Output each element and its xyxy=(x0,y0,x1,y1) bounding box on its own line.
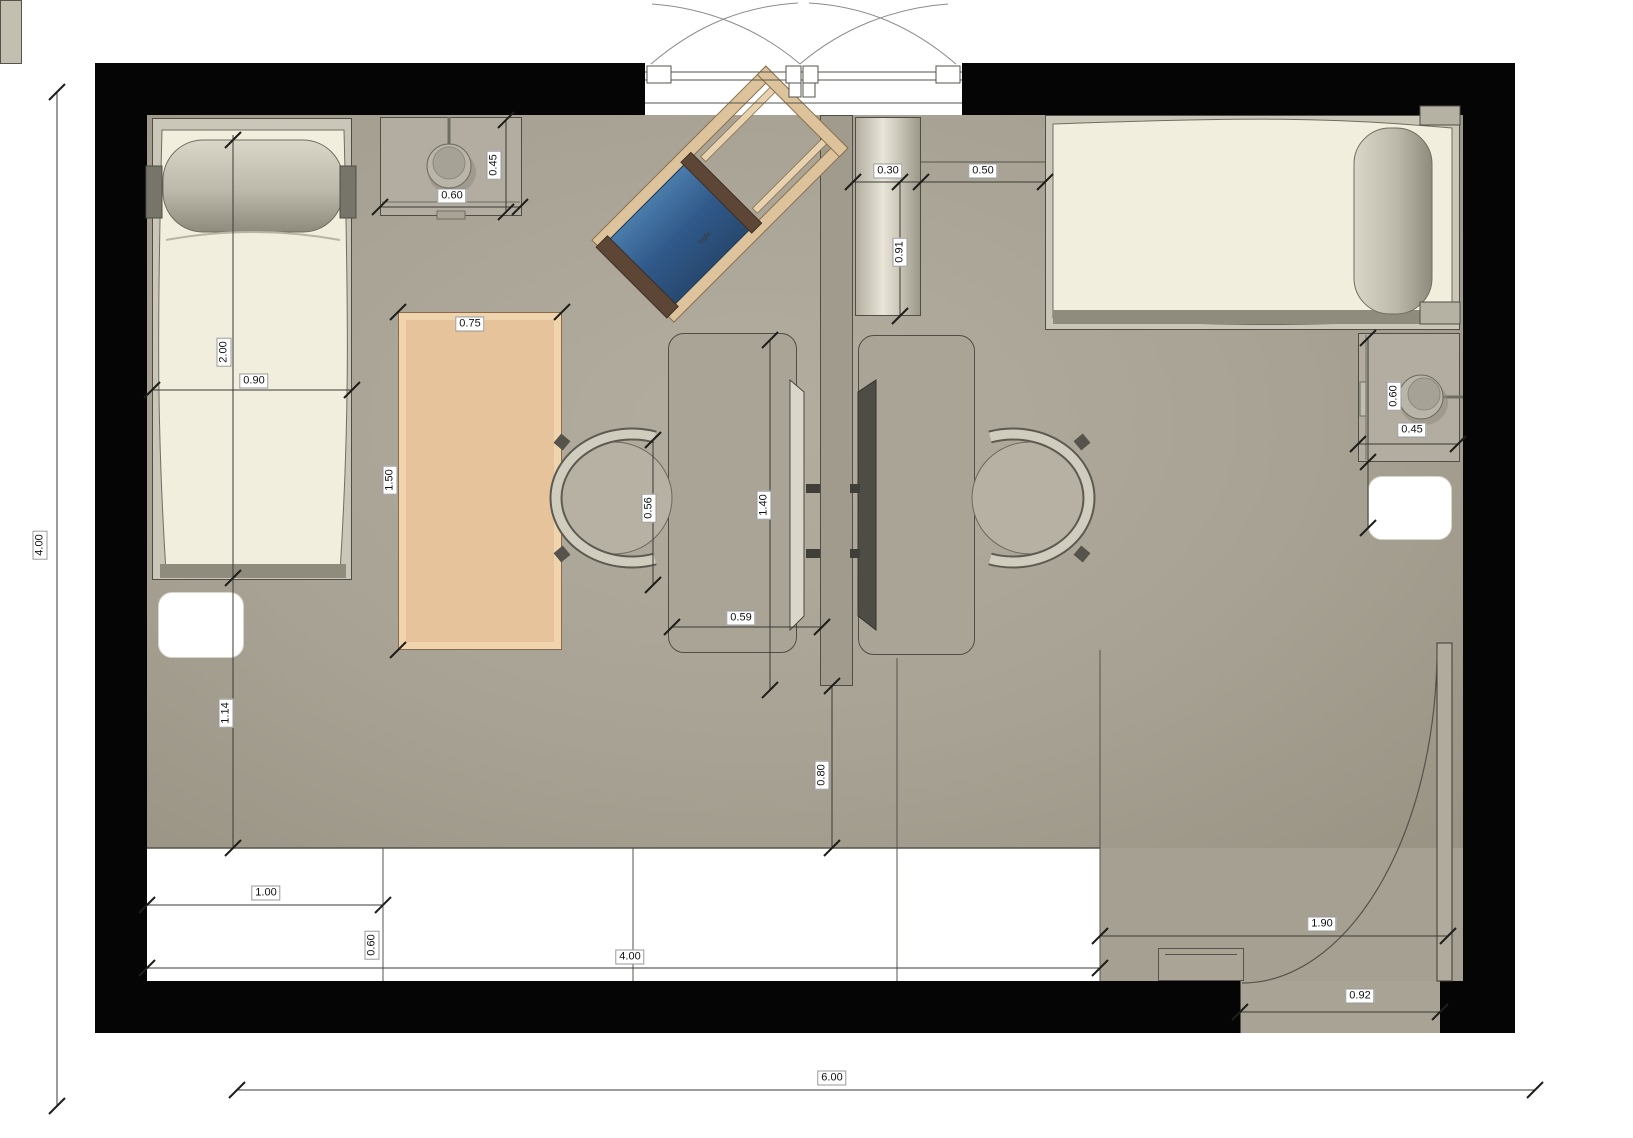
dim-label-band-0-60: 0.60 xyxy=(365,930,380,959)
dim-label-rug-length: 1.50 xyxy=(383,465,398,494)
dim-label-bed-left-length: 2.00 xyxy=(217,337,232,366)
dim-label-door-clearance: 1.90 xyxy=(1307,917,1336,932)
door xyxy=(1242,643,1452,983)
door-leaf xyxy=(1437,643,1452,981)
monitor-right xyxy=(850,380,876,630)
dim-label-cabinet-length: 0.91 xyxy=(893,237,908,266)
dim-label-desk-length: 1.40 xyxy=(757,490,772,519)
dim-label-cabinet-to-bed: 0.50 xyxy=(968,164,997,179)
dim-label-band-4-00: 4.00 xyxy=(615,950,644,965)
bed-left-mattress xyxy=(146,130,356,578)
dim-label-bed-to-band: 1.14 xyxy=(219,698,234,727)
monitor-left xyxy=(790,380,820,630)
dim-label-desk-depth: 0.59 xyxy=(726,611,755,626)
dim-label-nightstand-right-width: 0.45 xyxy=(1397,423,1426,438)
dim-label-bed-left-width: 0.90 xyxy=(239,374,268,389)
bed-right-mattress xyxy=(1053,106,1460,325)
door-swing-arc xyxy=(1242,648,1437,983)
dim-label-chair-width: 0.56 xyxy=(642,493,657,522)
dim-label-room-depth: 4.00 xyxy=(33,530,48,559)
dim-label-room-width: 6.00 xyxy=(817,1071,846,1086)
dim-label-nightstand-right-length: 0.60 xyxy=(1387,381,1402,410)
plan-linework: sigla xyxy=(0,0,1633,1138)
nightstand-right-details xyxy=(1360,335,1463,460)
dim-label-band-1: 1.00 xyxy=(251,886,280,901)
dim-label-cabinet-width: 0.30 xyxy=(873,164,902,179)
chair-right xyxy=(972,434,1090,563)
window-frame xyxy=(645,66,962,103)
window-swing-arcs xyxy=(651,3,956,64)
deck-chair: sigla xyxy=(590,66,847,323)
dim-label-door-width: 0.92 xyxy=(1345,989,1374,1004)
dim-label-partition-to-band: 0.80 xyxy=(815,760,830,789)
dim-label-rug-width: 0.75 xyxy=(455,317,484,332)
floor-plan: sigla xyxy=(0,0,1633,1138)
dim-label-nightstand-left-width: 0.60 xyxy=(437,189,466,204)
dim-label-nightstand-left-depth: 0.45 xyxy=(487,150,502,179)
